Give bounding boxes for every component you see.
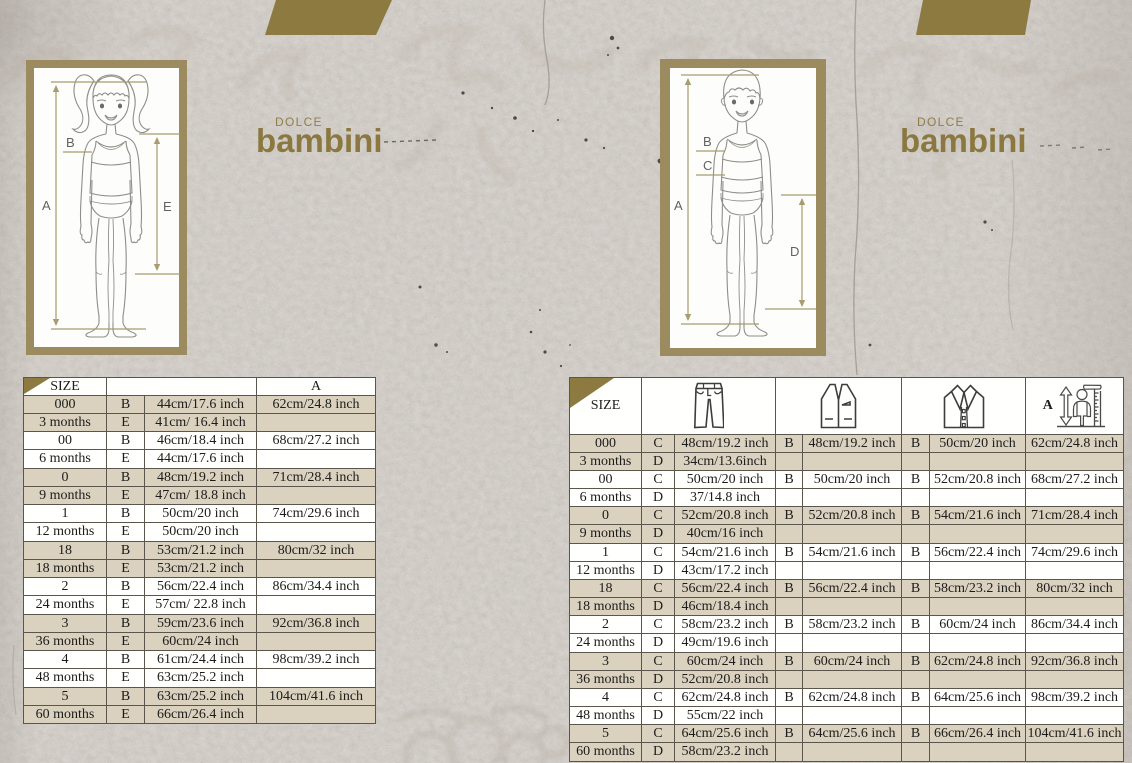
svg-text:B: B xyxy=(703,134,712,149)
svg-text:C: C xyxy=(703,158,712,173)
svg-text:E: E xyxy=(163,199,172,214)
svg-text:A: A xyxy=(674,198,683,213)
svg-text:D: D xyxy=(790,244,799,259)
svg-text:A: A xyxy=(42,198,51,213)
svg-text:B: B xyxy=(66,135,75,150)
